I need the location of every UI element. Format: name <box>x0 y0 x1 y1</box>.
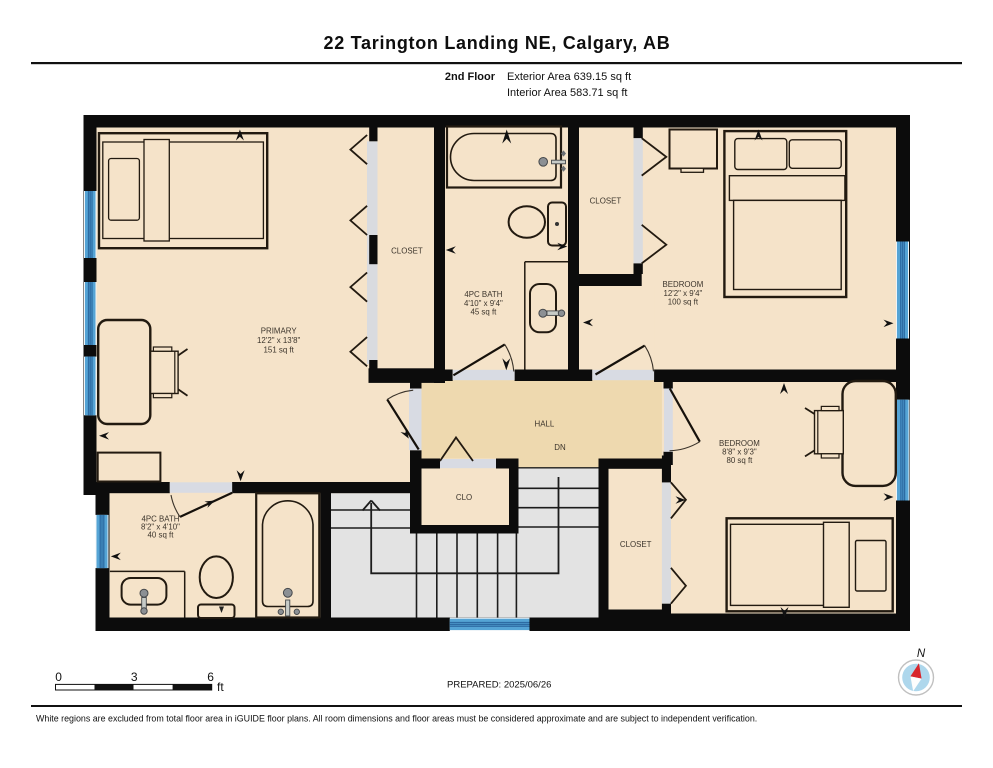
svg-text:40 sq ft: 40 sq ft <box>148 530 175 539</box>
svg-text:0: 0 <box>55 670 62 684</box>
svg-text:22 Tarington Landing NE, Calga: 22 Tarington Landing NE, Calgary, AB <box>324 33 671 53</box>
svg-text:N: N <box>917 648 926 660</box>
svg-text:CLOSET: CLOSET <box>620 540 652 549</box>
svg-text:3: 3 <box>131 670 138 684</box>
svg-text:PRIMARY: PRIMARY <box>261 327 298 336</box>
svg-text:ft: ft <box>217 680 224 694</box>
svg-text:White regions are excluded fro: White regions are excluded from total fl… <box>36 714 757 724</box>
svg-text:4PC BATH: 4PC BATH <box>464 290 502 299</box>
svg-text:HALL: HALL <box>535 419 555 428</box>
svg-text:Exterior Area 639.15 sq ft: Exterior Area 639.15 sq ft <box>507 71 631 83</box>
svg-text:2nd Floor: 2nd Floor <box>445 71 496 83</box>
svg-text:Interior Area 583.71 sq ft: Interior Area 583.71 sq ft <box>507 87 627 99</box>
svg-text:PREPARED: 2025/06/26: PREPARED: 2025/06/26 <box>447 680 551 691</box>
svg-text:CLOSET: CLOSET <box>590 197 622 206</box>
svg-text:100 sq ft: 100 sq ft <box>668 298 699 307</box>
svg-text:151 sq ft: 151 sq ft <box>264 345 295 354</box>
svg-text:80 sq ft: 80 sq ft <box>726 456 753 465</box>
svg-text:12'2" x 13'8": 12'2" x 13'8" <box>257 336 300 345</box>
svg-text:CLOSET: CLOSET <box>391 246 423 255</box>
svg-text:BEDROOM: BEDROOM <box>663 280 704 289</box>
svg-text:CLO: CLO <box>456 493 472 502</box>
svg-text:DN: DN <box>554 443 566 452</box>
svg-text:45 sq ft: 45 sq ft <box>470 308 497 317</box>
svg-text:6: 6 <box>207 670 214 684</box>
